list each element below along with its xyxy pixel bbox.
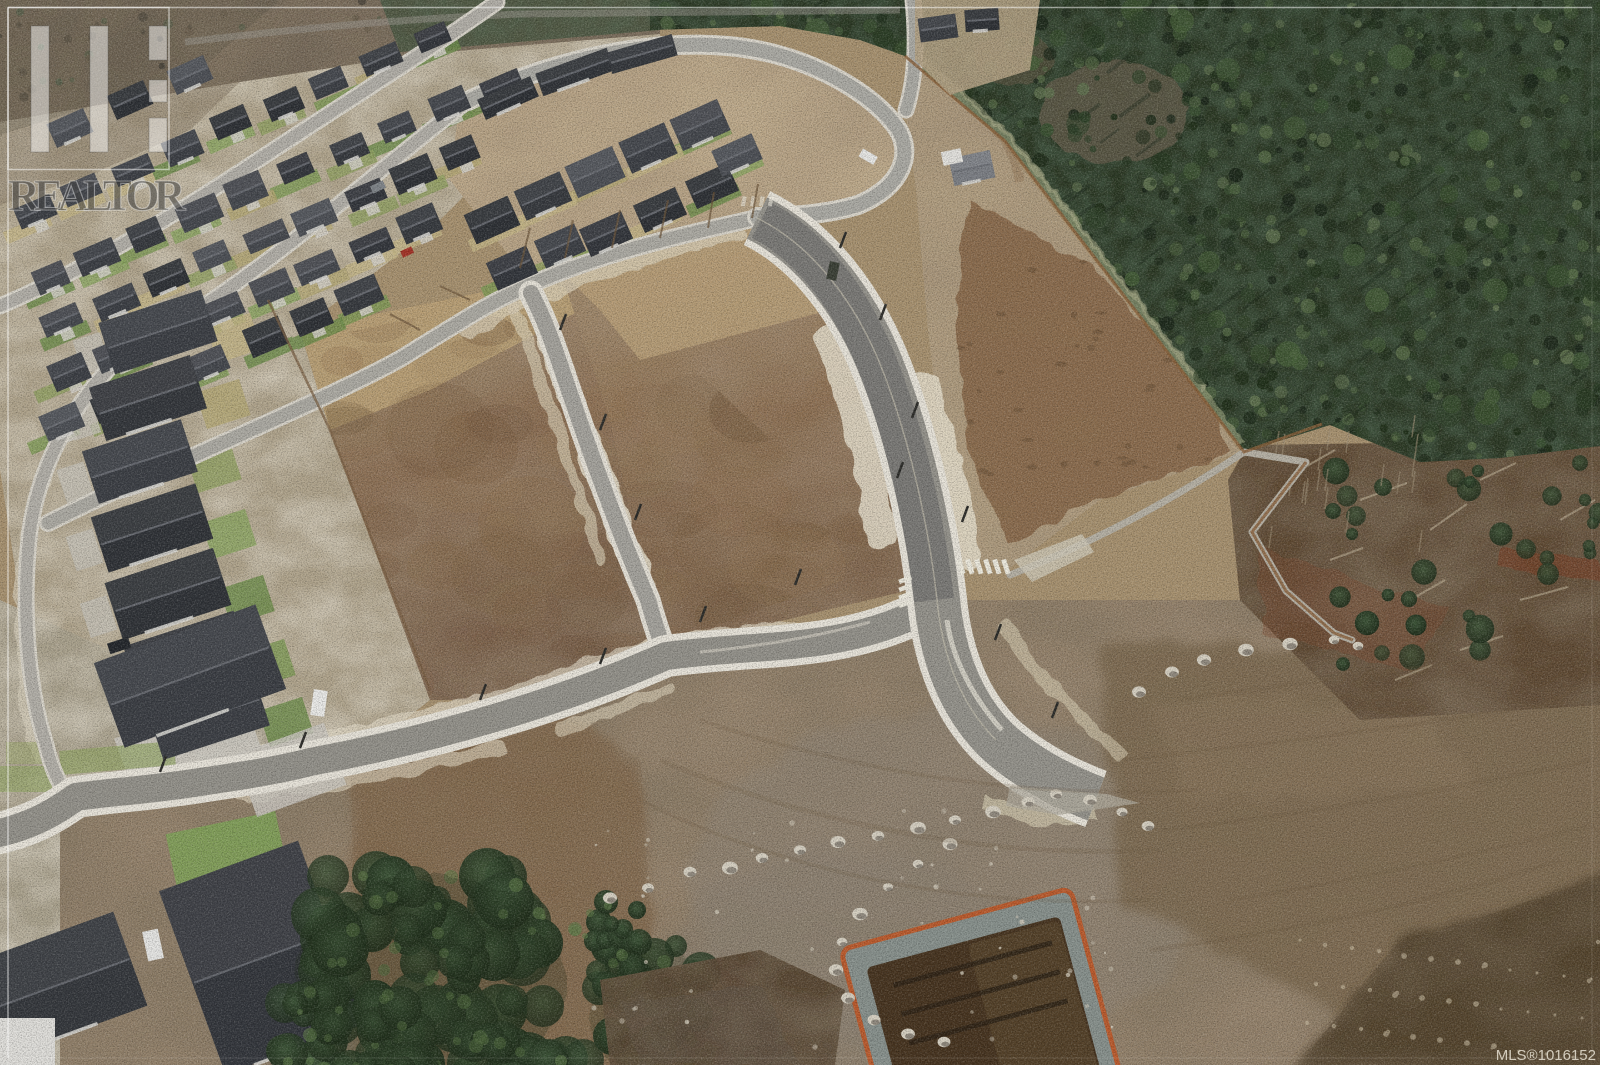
svg-text:MLS®1016152: MLS®1016152 xyxy=(1496,1047,1596,1064)
svg-text:REALTOR: REALTOR xyxy=(8,171,187,220)
